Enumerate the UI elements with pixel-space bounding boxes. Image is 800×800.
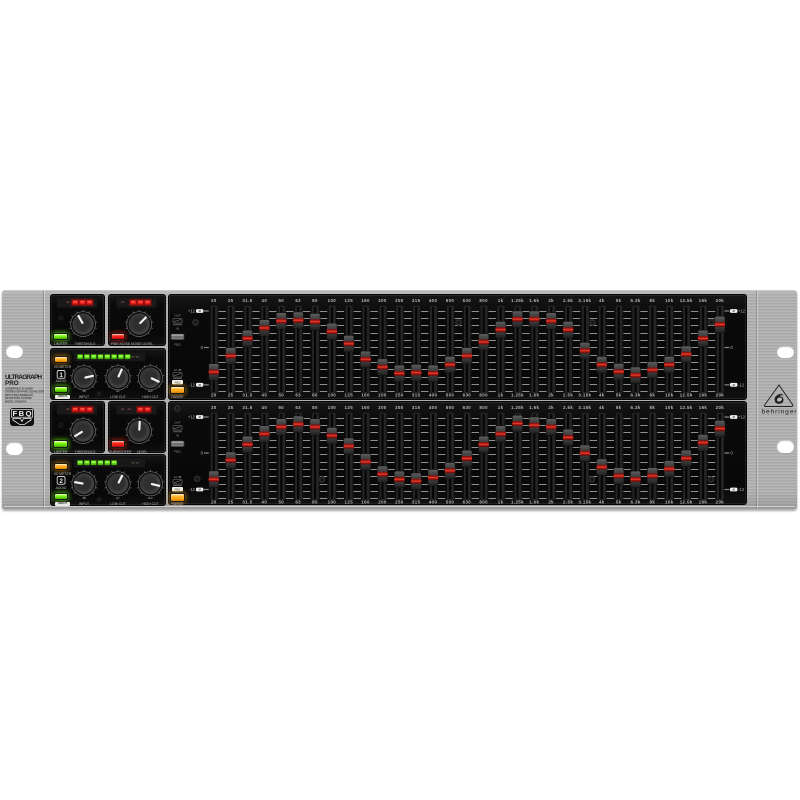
svg-text:125: 125 — [344, 500, 353, 505]
svg-text:63: 63 — [295, 392, 301, 397]
svg-text:6.3k: 6.3k — [630, 392, 640, 397]
svg-text:250: 250 — [395, 500, 404, 505]
svg-text:20: 20 — [210, 500, 216, 505]
svg-text:12.5k: 12.5k — [679, 298, 692, 303]
svg-text:4k: 4k — [598, 298, 604, 303]
svg-text:16k: 16k — [698, 298, 707, 303]
svg-text:50: 50 — [278, 298, 284, 303]
svg-text:630: 630 — [462, 298, 471, 303]
svg-text:+12: +12 — [187, 308, 195, 313]
svg-text:100: 100 — [327, 298, 336, 303]
svg-text:40: 40 — [261, 298, 267, 303]
svg-text:2k: 2k — [548, 500, 554, 505]
svg-text:5k: 5k — [615, 405, 621, 410]
svg-text:80: 80 — [312, 392, 318, 397]
svg-text:1.25k: 1.25k — [511, 405, 524, 410]
svg-text:12 dB: 12 dB — [173, 475, 181, 479]
svg-text:8k: 8k — [649, 298, 655, 303]
svg-text:4k: 4k — [598, 392, 604, 397]
svg-text:OUT: OUT — [174, 313, 181, 317]
svg-text:500: 500 — [445, 405, 454, 410]
svg-text:800: 800 — [479, 405, 488, 410]
svg-text:63: 63 — [295, 298, 301, 303]
svg-text:8k: 8k — [649, 405, 655, 410]
svg-text:2.5k: 2.5k — [563, 392, 573, 397]
svg-text:80: 80 — [312, 298, 318, 303]
svg-text:-12: -12 — [188, 487, 195, 492]
svg-text:dB: dB — [732, 383, 735, 387]
svg-text:100: 100 — [327, 500, 336, 505]
svg-text:dB: dB — [732, 488, 735, 492]
svg-text:PRO: PRO — [5, 380, 19, 387]
svg-text:2k: 2k — [548, 298, 554, 303]
svg-text:+12: +12 — [738, 415, 746, 420]
svg-text:1: 1 — [59, 371, 63, 378]
svg-text:31.5: 31.5 — [242, 500, 252, 505]
svg-text:50: 50 — [278, 500, 284, 505]
svg-text:FBQ: FBQ — [12, 409, 31, 418]
svg-text:1.25k: 1.25k — [511, 500, 524, 505]
svg-text:500: 500 — [445, 500, 454, 505]
svg-text:160: 160 — [361, 392, 370, 397]
svg-text:800: 800 — [479, 298, 488, 303]
svg-text:1k: 1k — [497, 405, 503, 410]
svg-text:250: 250 — [395, 405, 404, 410]
svg-text:315: 315 — [411, 298, 420, 303]
svg-text:IN: IN — [176, 326, 179, 330]
svg-text:250: 250 — [395, 298, 404, 303]
svg-text:80: 80 — [312, 500, 318, 505]
svg-text:6.3k: 6.3k — [630, 405, 640, 410]
svg-text:630: 630 — [462, 392, 471, 397]
svg-text:20: 20 — [210, 298, 216, 303]
svg-text:6.3k: 6.3k — [630, 298, 640, 303]
svg-text:630: 630 — [462, 500, 471, 505]
svg-text:160: 160 — [361, 500, 370, 505]
svg-text:OUT: OUT — [174, 421, 181, 425]
svg-text:1.25k: 1.25k — [511, 298, 524, 303]
svg-text:100: 100 — [327, 405, 336, 410]
svg-text:1k: 1k — [497, 392, 503, 397]
svg-text:2k: 2k — [548, 405, 554, 410]
svg-text:63: 63 — [295, 500, 301, 505]
svg-text:2: 2 — [59, 478, 63, 485]
svg-text:dB: dB — [198, 415, 201, 419]
svg-text:10k: 10k — [665, 500, 674, 505]
svg-text:4k: 4k — [598, 500, 604, 505]
svg-text:dB: dB — [198, 488, 201, 492]
svg-text:0: 0 — [200, 451, 203, 456]
svg-text:31.5: 31.5 — [242, 392, 252, 397]
svg-text:20k: 20k — [715, 392, 724, 397]
svg-text:160: 160 — [361, 405, 370, 410]
svg-text:10k: 10k — [665, 405, 674, 410]
svg-text:dB: dB — [198, 309, 201, 313]
svg-text:31.5: 31.5 — [242, 298, 252, 303]
svg-text:FBQ: FBQ — [174, 342, 181, 346]
svg-text:200: 200 — [378, 392, 387, 397]
svg-text:500: 500 — [445, 298, 454, 303]
svg-text:3.15k: 3.15k — [578, 298, 591, 303]
svg-text:315: 315 — [411, 500, 420, 505]
svg-text:6.3k: 6.3k — [630, 500, 640, 505]
svg-text:1.25k: 1.25k — [511, 392, 524, 397]
svg-text:FBQ: FBQ — [174, 450, 181, 454]
svg-text:2.5k: 2.5k — [563, 500, 573, 505]
svg-text:20k: 20k — [715, 298, 724, 303]
svg-text:1.6k: 1.6k — [529, 405, 539, 410]
svg-text:400: 400 — [428, 405, 437, 410]
svg-text:40: 40 — [261, 405, 267, 410]
svg-text:2k: 2k — [548, 392, 554, 397]
svg-text:400: 400 — [428, 298, 437, 303]
svg-text:25: 25 — [227, 500, 233, 505]
svg-text:1k: 1k — [497, 500, 503, 505]
svg-text:50: 50 — [278, 405, 284, 410]
svg-text:630: 630 — [462, 405, 471, 410]
svg-text:0: 0 — [200, 345, 203, 350]
svg-text:16k: 16k — [698, 500, 707, 505]
svg-text:4k: 4k — [598, 405, 604, 410]
svg-text:250: 250 — [395, 392, 404, 397]
svg-text:315: 315 — [411, 392, 420, 397]
svg-text:125: 125 — [344, 392, 353, 397]
svg-text:25: 25 — [227, 405, 233, 410]
svg-text:+12: +12 — [738, 308, 746, 313]
svg-text:dB: dB — [732, 415, 735, 419]
svg-text:80: 80 — [312, 405, 318, 410]
svg-text:FBQ: FBQ — [174, 380, 181, 384]
svg-text:IN: IN — [176, 434, 179, 438]
svg-text:5k: 5k — [615, 298, 621, 303]
svg-text:1.6k: 1.6k — [529, 392, 539, 397]
svg-text:315: 315 — [411, 405, 420, 410]
svg-text:200: 200 — [378, 405, 387, 410]
svg-text:63: 63 — [295, 405, 301, 410]
svg-text:5k: 5k — [615, 392, 621, 397]
svg-text:MODEL FBQ6200: MODEL FBQ6200 — [5, 399, 27, 403]
svg-text:200: 200 — [378, 298, 387, 303]
svg-text:FBQ: FBQ — [174, 487, 181, 491]
svg-text:5k: 5k — [615, 500, 621, 505]
svg-text:20: 20 — [210, 405, 216, 410]
svg-text:12.5k: 12.5k — [679, 500, 692, 505]
svg-text:20k: 20k — [715, 500, 724, 505]
svg-text:dB: dB — [198, 383, 201, 387]
svg-text:800: 800 — [479, 500, 488, 505]
svg-text:3.15k: 3.15k — [578, 500, 591, 505]
svg-text:10k: 10k — [665, 298, 674, 303]
svg-text:12.5k: 12.5k — [679, 392, 692, 397]
svg-text:40: 40 — [261, 392, 267, 397]
svg-text:1.6k: 1.6k — [529, 500, 539, 505]
svg-text:0: 0 — [730, 345, 733, 350]
svg-text:-12: -12 — [738, 382, 745, 387]
svg-text:behringer: behringer — [762, 409, 798, 416]
svg-text:-12: -12 — [188, 382, 195, 387]
svg-text:dB: dB — [732, 309, 735, 313]
svg-text:125: 125 — [344, 405, 353, 410]
svg-text:8k: 8k — [649, 392, 655, 397]
svg-text:1k: 1k — [497, 298, 503, 303]
svg-text:400: 400 — [428, 500, 437, 505]
svg-text:10k: 10k — [665, 392, 674, 397]
svg-text:12 dB: 12 dB — [173, 367, 181, 371]
svg-text:12.5k: 12.5k — [679, 405, 692, 410]
svg-text:25: 25 — [227, 298, 233, 303]
svg-text:800: 800 — [479, 392, 488, 397]
svg-text:0: 0 — [730, 451, 733, 456]
svg-text:200: 200 — [378, 500, 387, 505]
svg-text:20k: 20k — [715, 405, 724, 410]
svg-text:100: 100 — [327, 392, 336, 397]
svg-text:2.5k: 2.5k — [563, 298, 573, 303]
svg-text:500: 500 — [445, 392, 454, 397]
svg-text:+12: +12 — [187, 415, 195, 420]
svg-text:-12: -12 — [738, 487, 745, 492]
svg-text:3.15k: 3.15k — [578, 392, 591, 397]
svg-text:16k: 16k — [698, 405, 707, 410]
svg-text:3.15k: 3.15k — [578, 405, 591, 410]
svg-text:400: 400 — [428, 392, 437, 397]
svg-text:2.5k: 2.5k — [563, 405, 573, 410]
svg-text:20: 20 — [210, 392, 216, 397]
svg-text:16k: 16k — [698, 392, 707, 397]
svg-text:50: 50 — [278, 392, 284, 397]
svg-text:125: 125 — [344, 298, 353, 303]
svg-text:25: 25 — [227, 392, 233, 397]
svg-text:160: 160 — [361, 298, 370, 303]
svg-text:31.5: 31.5 — [242, 405, 252, 410]
svg-text:1.6k: 1.6k — [529, 298, 539, 303]
svg-text:40: 40 — [261, 500, 267, 505]
svg-text:8k: 8k — [649, 500, 655, 505]
